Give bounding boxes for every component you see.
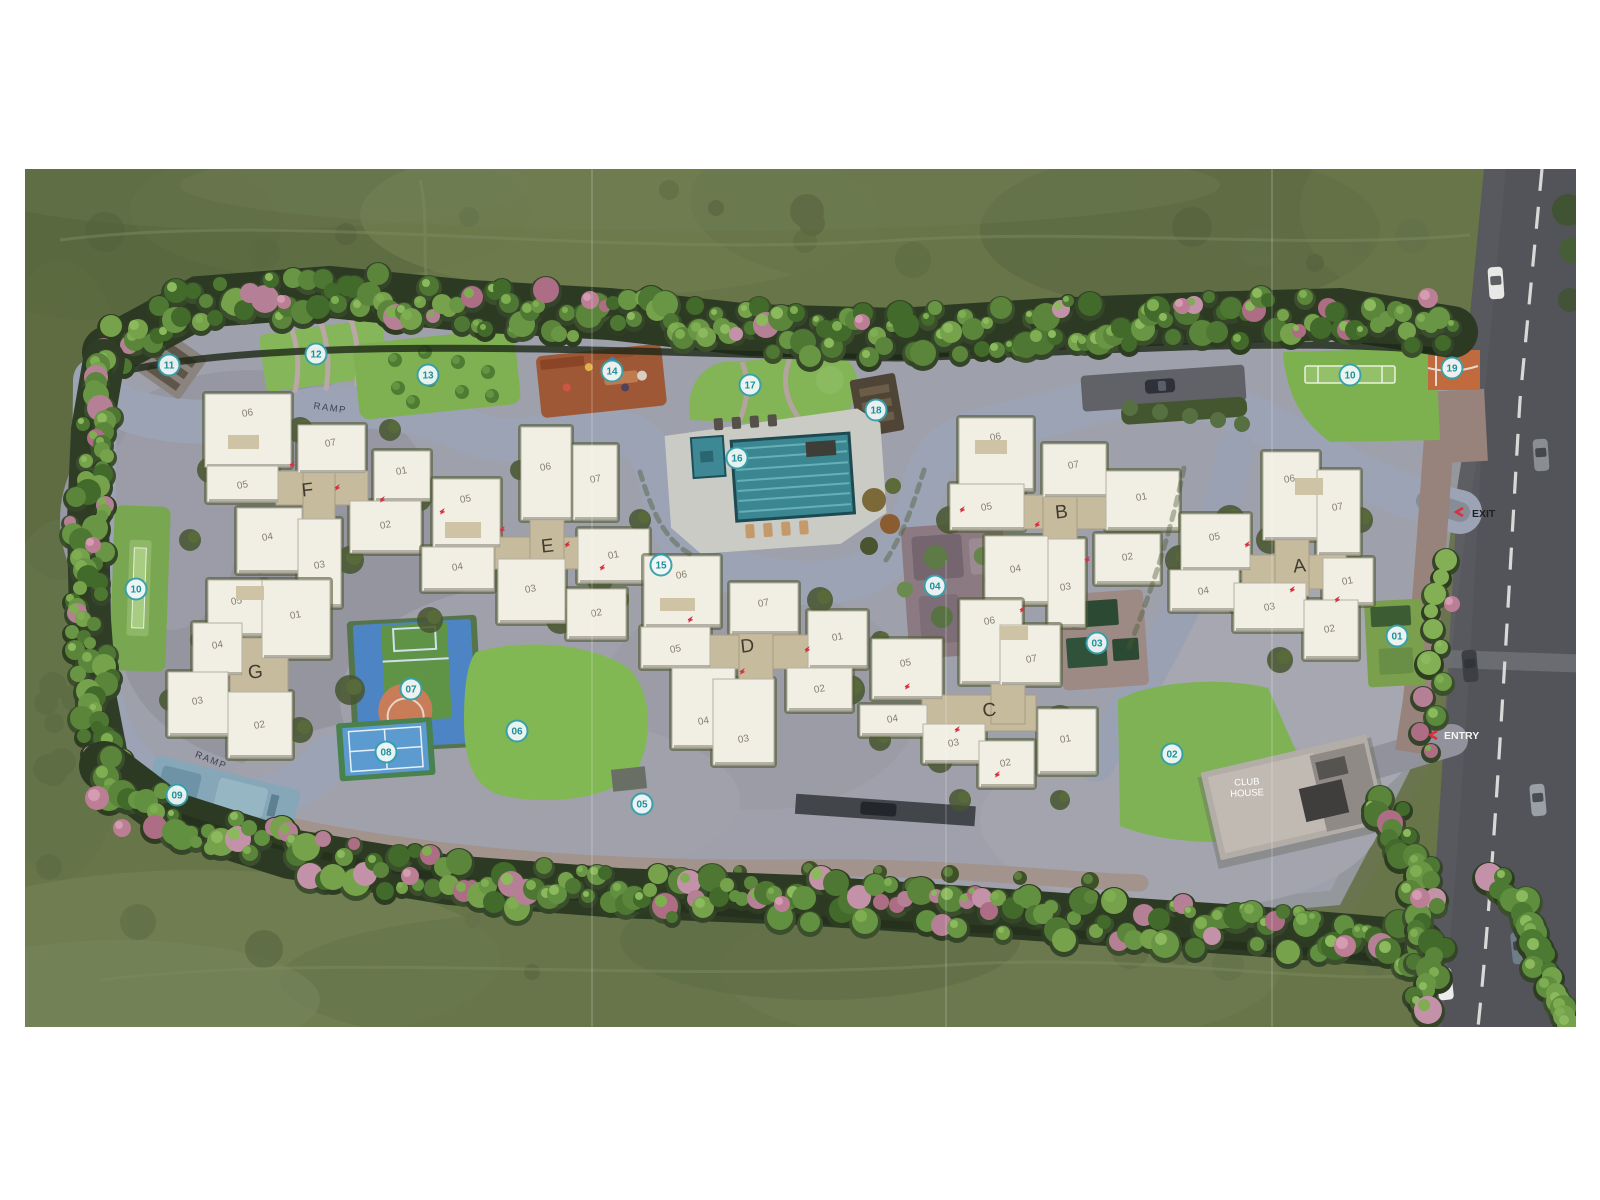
- svg-text:12: 12: [310, 350, 322, 361]
- svg-text:15: 15: [655, 561, 667, 572]
- svg-text:HOUSE: HOUSE: [1230, 787, 1264, 800]
- svg-text:ENTRY: ENTRY: [1444, 730, 1479, 742]
- svg-text:03: 03: [1091, 639, 1103, 650]
- svg-text:E: E: [540, 535, 555, 557]
- svg-text:B: B: [1054, 501, 1069, 523]
- svg-text:17: 17: [744, 381, 756, 392]
- svg-text:11: 11: [164, 361, 175, 372]
- svg-text:06: 06: [511, 727, 523, 738]
- svg-text:G: G: [247, 661, 264, 683]
- svg-text:01: 01: [1391, 632, 1403, 643]
- svg-text:F: F: [301, 479, 315, 501]
- svg-text:16: 16: [731, 454, 743, 465]
- svg-text:02: 02: [1166, 750, 1178, 761]
- svg-text:EXIT: EXIT: [1472, 508, 1496, 520]
- svg-text:04: 04: [929, 582, 941, 593]
- svg-text:C: C: [981, 699, 997, 721]
- svg-text:13: 13: [422, 371, 434, 382]
- svg-text:14: 14: [606, 367, 618, 378]
- svg-text:10: 10: [130, 585, 142, 596]
- svg-text:09: 09: [171, 791, 183, 802]
- svg-text:05: 05: [636, 800, 648, 811]
- svg-text:08: 08: [380, 748, 392, 759]
- svg-text:10: 10: [1344, 371, 1356, 382]
- svg-text:07: 07: [405, 685, 417, 696]
- svg-text:D: D: [739, 635, 755, 657]
- svg-text:18: 18: [870, 406, 882, 417]
- svg-text:A: A: [1292, 555, 1307, 577]
- svg-text:19: 19: [1446, 364, 1458, 375]
